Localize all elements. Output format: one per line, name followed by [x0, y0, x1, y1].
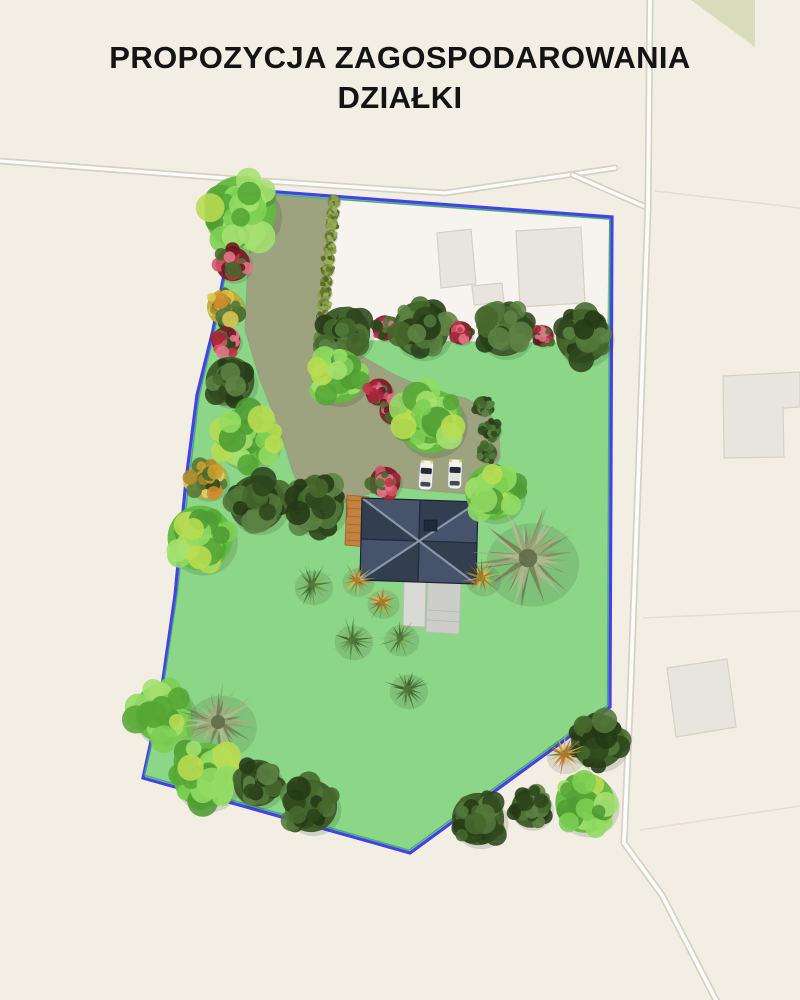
chimney [424, 520, 437, 531]
site-plan-page: PROPOZYCJA ZAGOSPODAROWANIA DZIAŁKI [0, 0, 800, 1000]
building [516, 227, 585, 307]
building [437, 229, 476, 288]
building [667, 659, 736, 737]
house-roof [360, 498, 478, 584]
terrace-paths [403, 576, 461, 634]
site-plan-map [0, 0, 800, 1000]
page-title: PROPOZYCJA ZAGOSPODAROWANIA DZIAŁKI [70, 38, 730, 119]
car [418, 460, 434, 491]
car [447, 459, 462, 489]
